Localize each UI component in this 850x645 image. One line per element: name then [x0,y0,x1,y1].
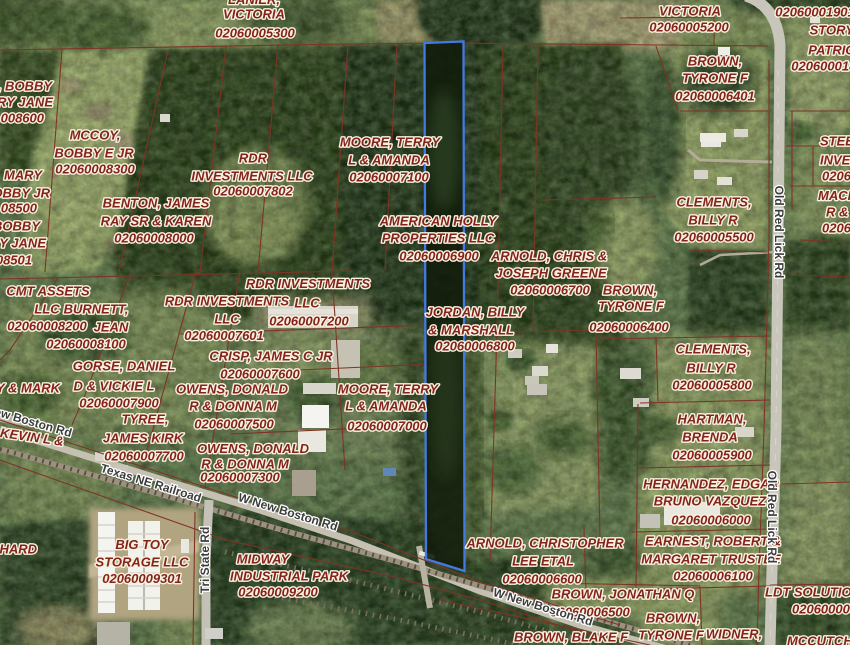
svg-text:TYRONE F: TYRONE F [598,299,665,314]
svg-text:& MARSHALL: & MARSHALL [428,323,514,338]
svg-text:LLC: LLC [294,296,320,311]
svg-text:BROWN,: BROWN, [688,54,742,69]
svg-text:BIG TOY: BIG TOY [115,537,170,552]
svg-text:D & VICKIE L: D & VICKIE L [74,379,155,394]
svg-text:08501: 08501 [0,253,32,268]
svg-text:TYRONE F: TYRONE F [682,71,749,86]
svg-text:RDR INVESTMENTS: RDR INVESTMENTS [165,294,290,309]
svg-text:02060007000: 02060007000 [347,419,427,434]
svg-text:BENTON, JAMES: BENTON, JAMES [103,196,210,211]
svg-text:RDR INVESTMENTS: RDR INVESTMENTS [246,276,371,291]
svg-text:02060006401: 02060006401 [675,89,755,104]
svg-text:02060006800: 02060006800 [435,339,515,354]
svg-text:02060: 02060 [822,221,850,236]
svg-text:JOSEPH GREENE: JOSEPH GREENE [495,266,607,281]
svg-text:02060006000: 02060006000 [671,513,751,528]
svg-text:02060008200: 02060008200 [7,319,87,334]
svg-text:02060006900: 02060006900 [399,249,479,264]
svg-text:BROWN,: BROWN, [646,611,700,626]
svg-text:JEAN: JEAN [94,320,129,335]
svg-text:LDT SOLUTION: LDT SOLUTION [765,585,850,600]
svg-text:CRISP, JAMES C JR: CRISP, JAMES C JR [209,349,333,364]
svg-text:VICTORIA: VICTORIA [223,7,285,22]
svg-text:EARNEST, ROBERT &: EARNEST, ROBERT & [645,534,781,549]
svg-text:02060005900: 02060005900 [672,448,752,463]
svg-text:L & AMANDA: L & AMANDA [345,399,427,414]
svg-text:02060007500: 02060007500 [194,417,274,432]
svg-text:L & AMANDA: L & AMANDA [348,153,430,168]
svg-text:02060005800: 02060005800 [672,378,752,393]
svg-text:02060007300: 02060007300 [200,470,280,485]
svg-text:LEE ETAL: LEE ETAL [512,554,574,569]
svg-text:02060: 02060 [822,169,850,184]
svg-text:OWENS, DONALD: OWENS, DONALD [197,441,310,456]
svg-text:02060008000: 02060008000 [114,231,194,246]
svg-text:BRENDA: BRENDA [682,430,738,445]
svg-text:02060007200: 02060007200 [269,314,349,329]
svg-text:02060007802: 02060007802 [213,184,293,199]
svg-text:STEEL: STEEL [820,134,850,149]
svg-text:02060009200: 02060009200 [238,585,318,600]
svg-text:BROWN, JONATHAN Q: BROWN, JONATHAN Q [552,587,695,602]
svg-text:GORSE, DANIEL: GORSE, DANIEL [73,359,176,374]
svg-text:ARNOLD, CHRISTOPHER: ARNOLD, CHRISTOPHER [465,536,624,551]
svg-text:K, BOBBY: K, BOBBY [0,79,53,94]
svg-text:MCCUTCHEON: MCCUTCHEON [787,634,850,645]
svg-text:02060007601: 02060007601 [184,328,264,343]
svg-text:02060001901: 02060001901 [775,5,850,20]
svg-text:BILLY R: BILLY R [686,361,736,376]
svg-text:BURNETT,: BURNETT, [64,302,129,317]
svg-text:Old Red Lick Rd: Old Red Lick Rd [772,186,786,279]
svg-text:BY & MARK: BY & MARK [0,381,62,396]
svg-text:02060006600: 02060006600 [502,572,582,587]
svg-text:02060006700: 02060006700 [510,283,590,298]
svg-text:008600: 008600 [1,111,45,126]
svg-text:02060008300: 02060008300 [55,162,135,177]
svg-text:Old Red Lick Rd: Old Red Lick Rd [765,471,779,564]
svg-text:INVESTMENTS LLC: INVESTMENTS LLC [191,169,313,184]
svg-text:02060007700: 02060007700 [104,449,184,464]
svg-text:02060008100: 02060008100 [46,337,126,352]
svg-text:RY JANE: RY JANE [0,236,46,251]
svg-text:02060005200: 02060005200 [649,20,729,35]
svg-text:BROWN, BLAKE F: BROWN, BLAKE F [514,630,629,645]
svg-text:HARTMAN,: HARTMAN, [677,412,746,427]
svg-text:TYRONE F: TYRONE F [638,628,705,643]
svg-text:LLC: LLC [34,302,60,317]
svg-text:AMERICAN HOLLY: AMERICAN HOLLY [379,214,498,229]
svg-text:MACKE: MACKE [818,188,850,203]
svg-text:STORAGE LLC: STORAGE LLC [96,555,190,570]
svg-text:MOORE, TERRY: MOORE, TERRY [340,135,441,150]
svg-text:Tri State Rd: Tri State Rd [198,527,212,594]
svg-text:WIDNER,: WIDNER, [706,627,762,642]
svg-text:RAY SR & KAREN: RAY SR & KAREN [101,214,212,229]
svg-text:JAMES KIRK: JAMES KIRK [103,431,185,446]
svg-text:HARD: HARD [0,542,38,557]
svg-text:MCCOY,: MCCOY, [70,128,121,143]
svg-text:BRUNO VAZQUEZ: BRUNO VAZQUEZ [654,494,767,509]
svg-text:02060005300: 02060005300 [215,26,295,41]
svg-text:PATRICIA: PATRICIA [808,43,850,58]
svg-text:OWENS, DONALD: OWENS, DONALD [176,382,289,397]
svg-text:020600000: 020600000 [792,602,850,617]
svg-text:MOORE, TERRY: MOORE, TERRY [338,382,439,397]
svg-text:R & DONNA M: R & DONNA M [189,399,278,414]
svg-text:MIDWAY: MIDWAY [237,552,291,567]
svg-text:CLEMENTS,: CLEMENTS, [676,195,751,210]
svg-text:CLEMENTS,: CLEMENTS, [675,342,750,357]
svg-text:02060006100: 02060006100 [673,569,753,584]
svg-text:RDR: RDR [239,151,268,166]
svg-text:INDUSTRIAL PARK: INDUSTRIAL PARK [230,569,350,584]
svg-text:MARY: MARY [4,168,43,183]
svg-text:02060007100: 02060007100 [349,170,429,185]
svg-text:CMT ASSETS: CMT ASSETS [6,284,90,299]
svg-text:02060006400: 02060006400 [589,320,669,335]
svg-text:02060005500: 02060005500 [674,230,754,245]
svg-text:BROWN,: BROWN, [603,283,657,298]
svg-text:R & V: R & V [826,205,850,220]
svg-text:BOBBY JR: BOBBY JR [0,186,51,201]
svg-text:02060009301: 02060009301 [102,571,182,586]
svg-text:ARY JANE: ARY JANE [0,95,53,110]
svg-text:02060001800: 02060001800 [791,59,850,74]
svg-text:LLC: LLC [214,312,240,327]
svg-text:02060007900: 02060007900 [79,396,159,411]
svg-text:BILLY R: BILLY R [688,213,738,228]
svg-text:VICTORIA: VICTORIA [659,4,721,19]
svg-text:JORDAN, BILLY: JORDAN, BILLY [426,305,526,320]
svg-text:MARGARET TRUSTEE: MARGARET TRUSTEE [641,552,781,567]
svg-text:STORY,: STORY, [810,23,850,38]
svg-text:HERNANDEZ, EDGAR: HERNANDEZ, EDGAR [643,477,779,492]
svg-text:08500: 08500 [1,201,38,216]
svg-text:INVES: INVES [820,153,850,168]
svg-text:PROPERTIES LLC: PROPERTIES LLC [382,231,495,246]
svg-text:BOBBY E JR: BOBBY E JR [54,146,134,161]
svg-text:ARNOLD, CHRIS &: ARNOLD, CHRIS & [490,249,607,264]
svg-text:TYREE,: TYREE, [122,412,169,427]
svg-text:02060007600: 02060007600 [220,367,300,382]
svg-text:BOBBY: BOBBY [0,219,41,234]
